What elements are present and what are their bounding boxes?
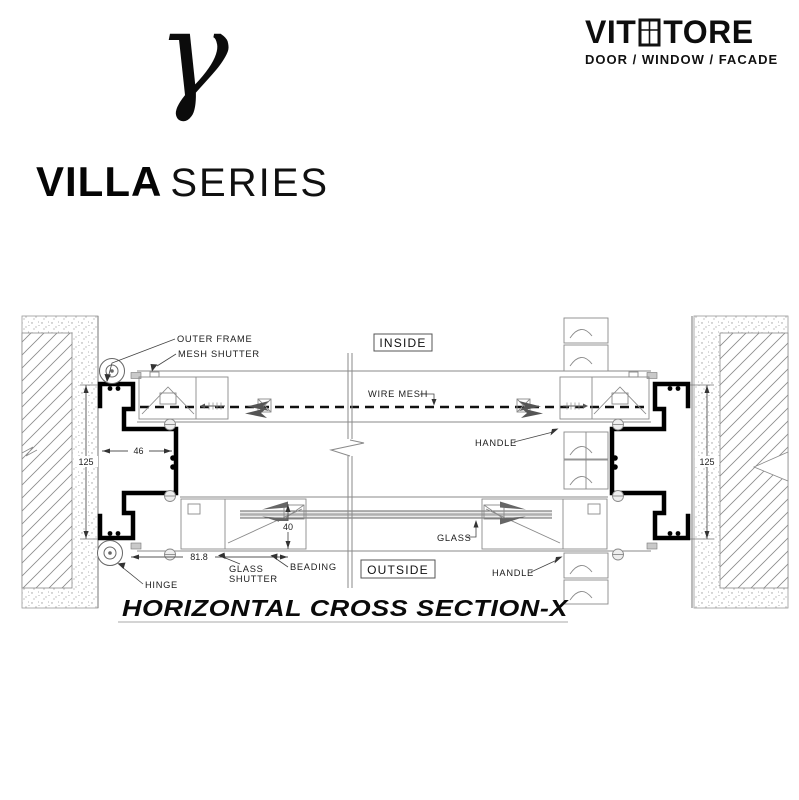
glass-label: GLASS xyxy=(437,533,472,543)
inside-label: INSIDE xyxy=(379,336,426,350)
wordmark-v: V xyxy=(585,16,607,48)
frame-profile-left xyxy=(100,372,306,560)
dim-frame-width: 46 xyxy=(133,446,143,456)
dim-shutter-width: 81.8 xyxy=(190,552,208,562)
dim-glass-offset: 40 xyxy=(283,522,293,532)
series-name: VILLA xyxy=(36,158,162,205)
cross-section-drawing: 125 125 46 81.8 xyxy=(0,290,799,635)
vittore-wordmark: VIT TORE xyxy=(585,16,795,48)
dimension-81-8: 81.8 xyxy=(131,552,288,563)
drawing-title-text: HORIZONTAL CROSS SECTION-X xyxy=(122,595,569,621)
callout-mesh-shutter: MESH SHUTTER xyxy=(151,349,260,372)
callout-glass: GLASS xyxy=(437,520,479,543)
callout-wire-mesh: WIRE MESH xyxy=(368,389,437,406)
outer-frame-label: OUTER FRAME xyxy=(177,334,252,344)
wordmark-tore: TORE xyxy=(663,16,753,48)
window-pane-icon xyxy=(638,18,661,47)
handle-top-label: HANDLE xyxy=(475,438,517,448)
vittore-logo: VIT TORE DOOR / WINDOW / FACADE xyxy=(585,16,795,67)
handle-bottom-label: HANDLE xyxy=(492,568,534,578)
callout-handle-top: HANDLE xyxy=(475,429,559,449)
callout-handle-bottom: HANDLE xyxy=(492,557,563,579)
beading-label: BEADING xyxy=(290,562,337,572)
inside-box: INSIDE xyxy=(374,334,432,351)
hinge-label: HINGE xyxy=(145,580,178,590)
handle-assembly xyxy=(564,318,608,604)
callout-hinge: HINGE xyxy=(118,563,178,591)
wordmark-it: IT xyxy=(607,16,636,48)
drawing-title: HORIZONTAL CROSS SECTION-X xyxy=(118,595,569,622)
dim-left-wall: 125 xyxy=(78,457,93,467)
glass-shutter-label-2: SHUTTER xyxy=(229,574,278,584)
section-break-line xyxy=(329,353,367,588)
dim-right-wall: 125 xyxy=(699,457,714,467)
glass-shutter-label-1: GLASS xyxy=(229,564,264,574)
mesh-shutter-label: MESH SHUTTER xyxy=(178,349,260,359)
gamma-monogram: γ xyxy=(126,0,260,125)
logo-tagline: DOOR / WINDOW / FACADE xyxy=(585,52,795,67)
series-title: VILLASERIES xyxy=(36,158,329,206)
dimension-46: 46 xyxy=(102,446,172,457)
outside-label: OUTSIDE xyxy=(367,563,429,577)
series-suffix: SERIES xyxy=(170,161,329,205)
wire-mesh-label: WIRE MESH xyxy=(368,389,428,399)
page: γ VIT TORE DOOR / WINDOW / FACADE VILLAS… xyxy=(0,0,799,800)
outside-box: OUTSIDE xyxy=(361,560,435,578)
